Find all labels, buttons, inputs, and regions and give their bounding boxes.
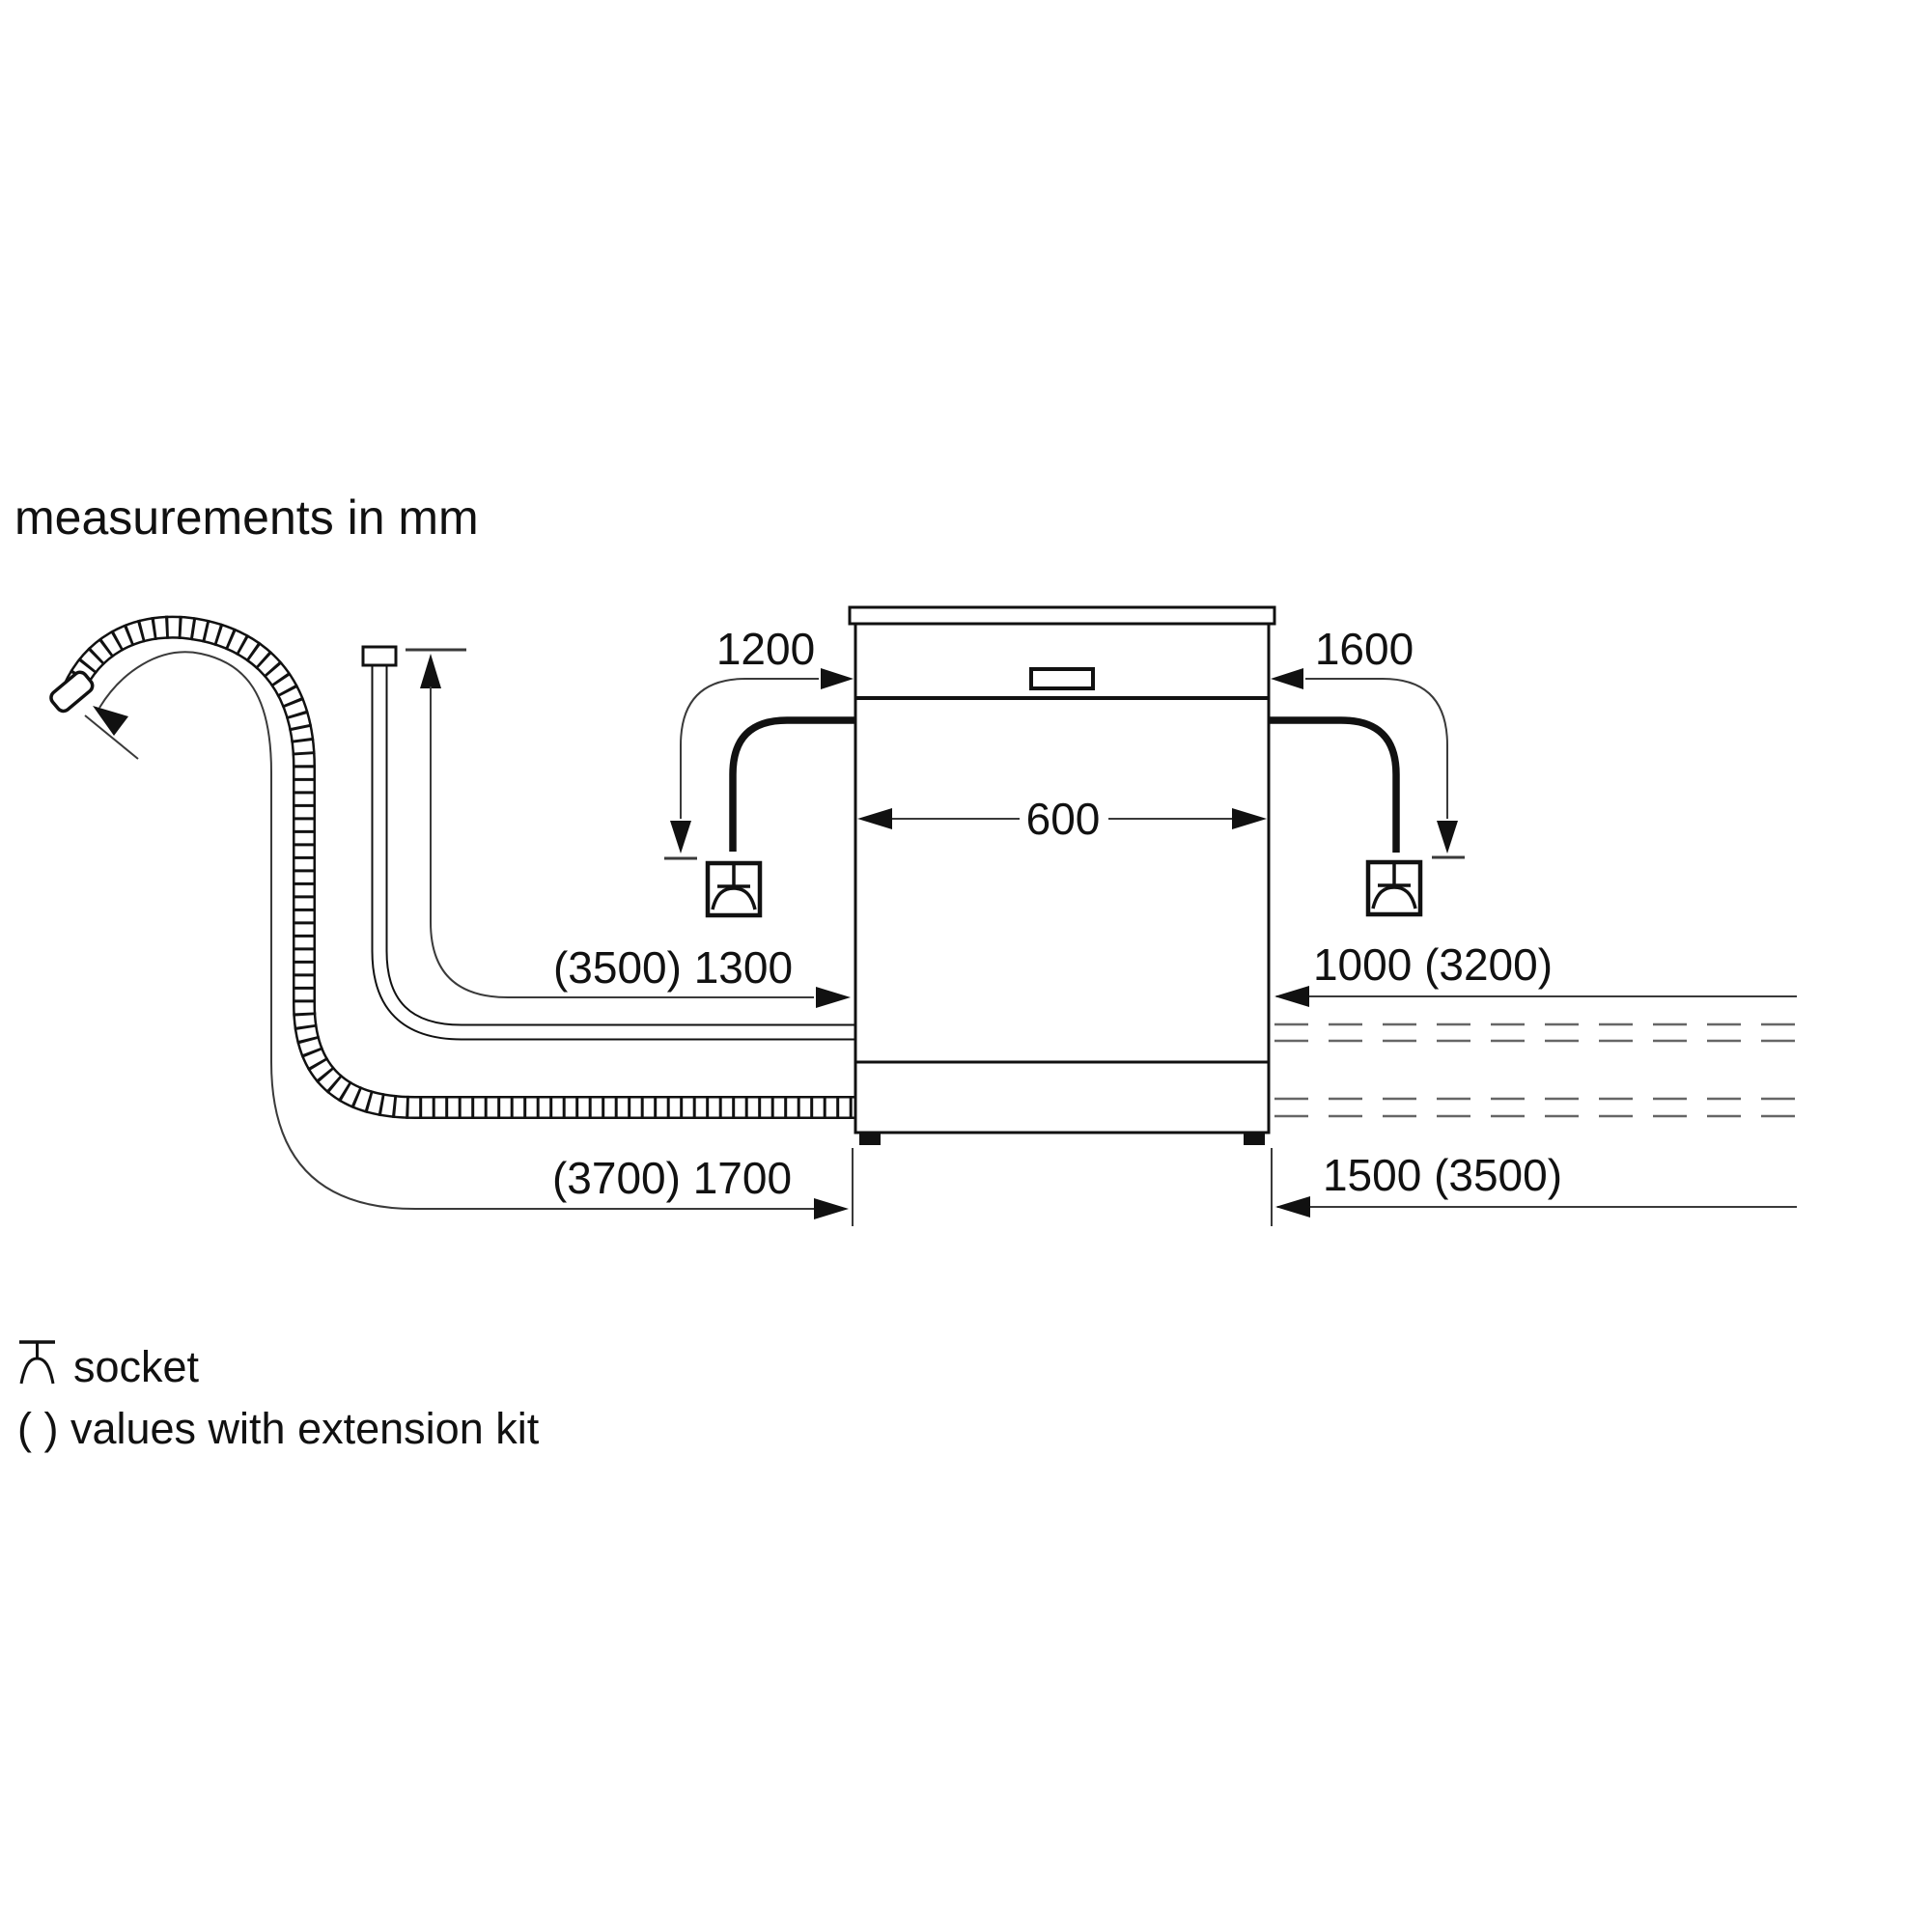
arrowhead-right-icon (821, 668, 854, 689)
diagram-title: measurements in mm (14, 490, 479, 545)
socket-right-icon (1368, 862, 1420, 914)
arrowhead-left-icon (1275, 1196, 1310, 1218)
power-cord-right-icon (1269, 720, 1396, 853)
label-1500-3500: 1500 (3500) (1323, 1150, 1562, 1200)
door-handle (1031, 669, 1093, 688)
dimension-supply-hose: (3500) 1300 (406, 650, 851, 1008)
dimension-power-cord-right: 1600 (1271, 624, 1465, 857)
dimension-right-lower: 1500 (3500) (1275, 1150, 1797, 1218)
dashed-extension-lines (1274, 1024, 1798, 1116)
dishwasher-body (855, 624, 1269, 1133)
legend: socket ( ) values with extension kit (17, 1342, 540, 1453)
power-cord-left-icon (733, 720, 855, 852)
socket-left-icon (708, 863, 760, 915)
installation-diagram: measurements in mm (0, 0, 1932, 1932)
label-3500-1300: (3500) 1300 (553, 942, 793, 993)
legend-socket-icon (19, 1342, 55, 1384)
legend-socket-label: socket (73, 1342, 200, 1391)
arrowhead-toward-cap-icon (93, 706, 128, 736)
dimension-drain-hose: (3700) 1700 (85, 652, 849, 1219)
dishwasher-worktop (850, 607, 1274, 624)
label-1000-3200: 1000 (3200) (1313, 939, 1553, 990)
label-600: 600 (1026, 794, 1101, 844)
arrowhead-right-icon (814, 1198, 849, 1219)
drain-hose-cap (48, 669, 95, 714)
arrowhead-up-icon (420, 654, 441, 688)
arrowhead-left-icon (1274, 986, 1309, 1007)
arrowhead-right-icon (816, 987, 851, 1008)
label-1600: 1600 (1315, 624, 1414, 674)
arrowhead-down-icon (670, 821, 691, 854)
dishwasher (850, 607, 1274, 1145)
installation-diagram-page: measurements in mm (0, 0, 1932, 1932)
foot-right (1244, 1134, 1265, 1145)
label-1200: 1200 (716, 624, 815, 674)
label-3700-1700: (3700) 1700 (552, 1153, 792, 1203)
legend-extension-label: ( ) values with extension kit (17, 1404, 540, 1453)
arrowhead-down-icon (1437, 821, 1458, 854)
arrowhead-left-icon (1271, 668, 1303, 689)
dimension-power-cord-left: 1200 (664, 624, 854, 858)
foot-left (859, 1134, 881, 1145)
supply-hose-cap (363, 647, 396, 665)
dimension-right-upper: 1000 (3200) (1274, 939, 1797, 1007)
